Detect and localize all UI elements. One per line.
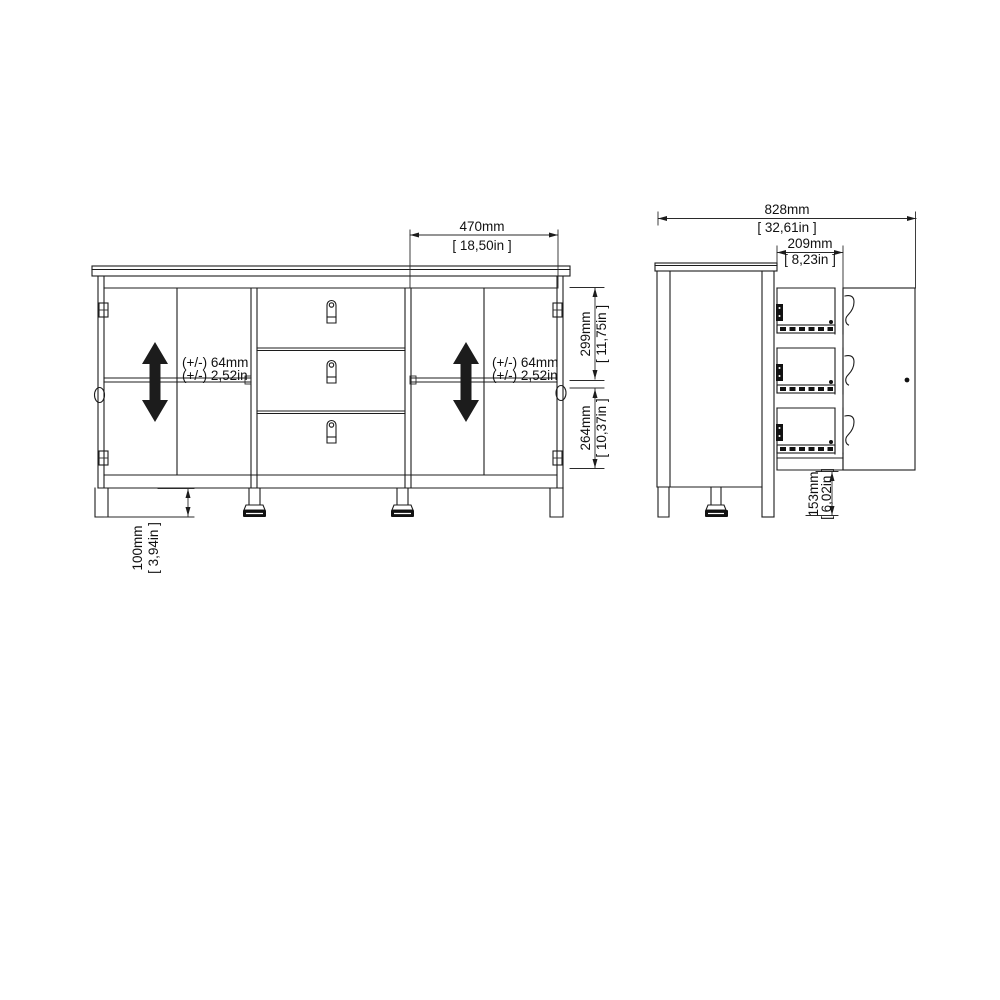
side-top-panel: [655, 263, 777, 271]
dim-label-in: [ 10,37in ]: [594, 398, 609, 457]
drawer-strap-handle-icon: [845, 356, 854, 385]
slide-bracket-icon: [776, 304, 783, 321]
side-drawer-1: [776, 288, 854, 334]
shelf-adjust-label-in: (+/-) 2,52in: [182, 368, 248, 383]
door-knob-icon: [905, 378, 910, 383]
front-top-panel: [92, 266, 570, 276]
front-drawers: [257, 301, 405, 444]
furniture-dimension-diagram: (+/-) 64mm (+/-) 2,52in (+/-) 64mm (+/-)…: [0, 0, 1000, 1000]
drawer-handle-icon: [327, 361, 336, 384]
dim-label-mm: 209mm: [787, 236, 832, 251]
dim-interior-heights: 299mm [ 11,75in ] 264mm [ 10,37in ]: [570, 288, 609, 469]
dim-leg-height-front: 100mm [ 3,94in ]: [104, 489, 194, 574]
front-legs: [95, 488, 563, 517]
dim-label-mm: 100mm: [130, 525, 145, 570]
dim-label-in: [ 3,94in ]: [146, 522, 161, 574]
shelf-adjust-left: (+/-) 64mm (+/-) 2,52in: [142, 342, 248, 422]
drawer-handle-icon: [327, 301, 336, 324]
dim-door-width: 470mm [ 18,50in ]: [410, 219, 558, 288]
dim-label-in: [ 18,50in ]: [452, 238, 511, 253]
dim-label-mm: 828mm: [764, 202, 809, 217]
adjustable-foot-icon: [705, 487, 728, 517]
dim-label-in: [ 11,75in ]: [594, 305, 609, 363]
side-drawer-3: [776, 408, 854, 454]
dim-label-in: [ 6,02in ]: [819, 468, 834, 520]
dim-label-in: [ 8,23in ]: [784, 252, 836, 267]
drawer-strap-handle-icon: [845, 296, 854, 325]
door-pull-icon: [95, 388, 105, 403]
side-drawer-base: [777, 453, 843, 470]
side-carcass: [657, 271, 774, 517]
side-drawer-2: [776, 348, 854, 394]
front-view: (+/-) 64mm (+/-) 2,52in (+/-) 64mm (+/-)…: [92, 219, 609, 574]
dim-label-mm: 299mm: [578, 311, 593, 356]
side-view: 828mm [ 32,61in ] 209mm [ 8,23in ] 153mm…: [655, 202, 916, 520]
adjustable-foot-icon: [391, 488, 414, 517]
slide-bracket-icon: [776, 424, 783, 441]
shelf-adjust-right: (+/-) 64mm (+/-) 2,52in: [453, 342, 558, 422]
dim-label-mm: 264mm: [578, 405, 593, 450]
dim-leg-height-side: 153mm [ 6,02in ]: [806, 468, 838, 520]
drawer-handle-icon: [327, 421, 336, 444]
shelf-adjust-label-in: (+/-) 2,52in: [492, 368, 558, 383]
dim-label-mm: 470mm: [459, 219, 504, 234]
technical-drawing-canvas: (+/-) 64mm (+/-) 2,52in (+/-) 64mm (+/-)…: [0, 0, 1000, 1000]
drawer-strap-handle-icon: [845, 416, 854, 445]
dim-drawer-depth: 209mm [ 8,23in ]: [777, 236, 843, 288]
slide-bracket-icon: [776, 364, 783, 381]
dim-label-in: [ 32,61in ]: [757, 220, 816, 235]
side-open-door: [843, 288, 915, 470]
adjustable-foot-icon: [243, 488, 266, 517]
